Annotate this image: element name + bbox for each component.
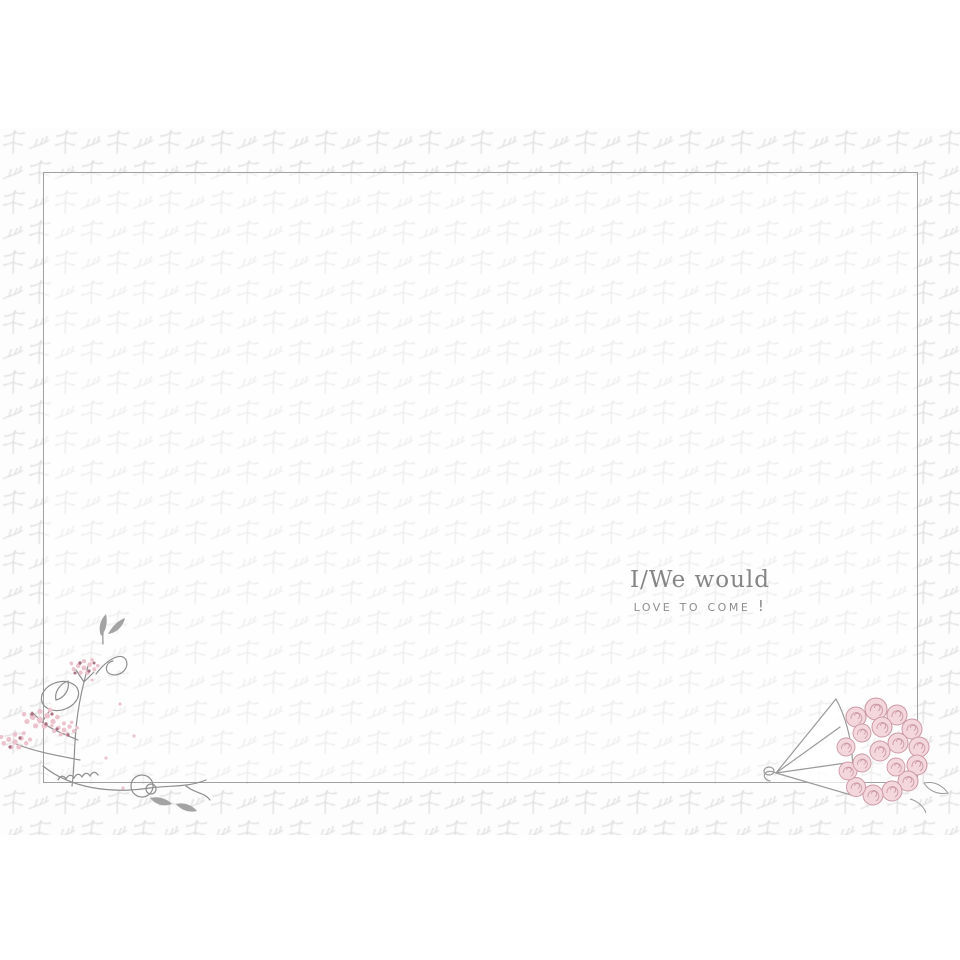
corner-blossom-illustration — [0, 608, 230, 818]
corner-floral-leaves — [100, 614, 197, 812]
card-inner-spread: I/We would love to come ! — [0, 128, 960, 835]
rsvp-message-line2: love to come ! — [560, 597, 840, 615]
corner-floral-blossom-accents — [8, 661, 95, 748]
rsvp-message: I/We would love to come ! — [560, 568, 840, 615]
rose-bouquet-illustration — [760, 683, 960, 818]
rsvp-card-page: I/We would love to come ! — [0, 0, 960, 960]
rsvp-message-line1: I/We would — [560, 568, 840, 593]
bouquet-roses — [837, 698, 929, 805]
corner-floral-blossoms — [0, 658, 136, 789]
